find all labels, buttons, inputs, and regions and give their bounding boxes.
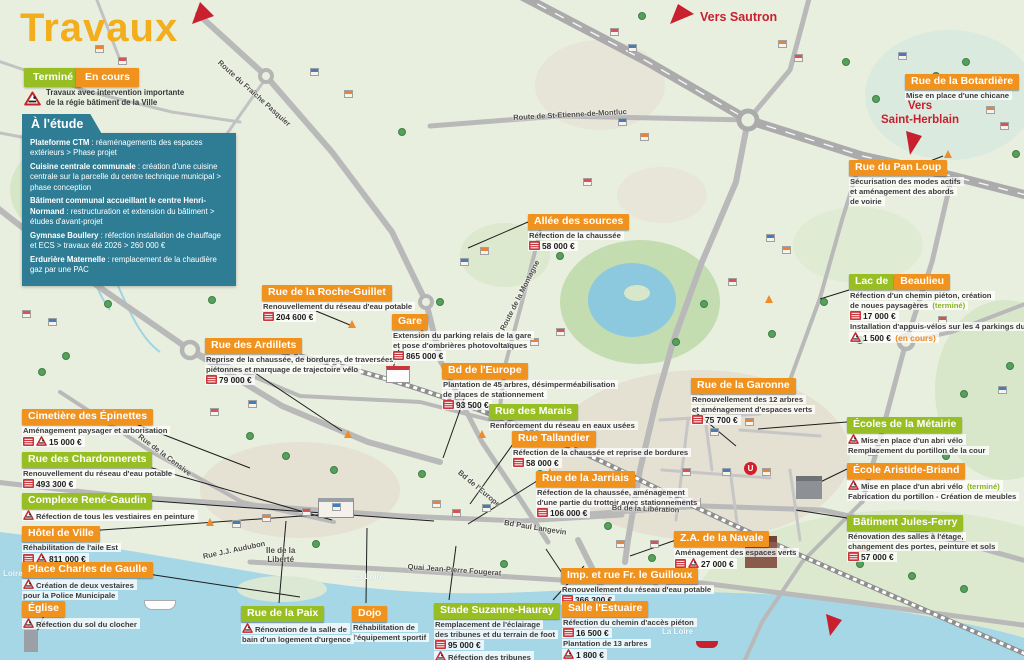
callout-title-lac-de-beaulieu[interactable]: Lac de [849, 274, 894, 290]
callout-title-stade-suzanne-hauray[interactable]: Stade Suzanne-Hauray [434, 603, 560, 619]
callout-line: 865 000 € [392, 351, 446, 361]
callout-rue-des-chardonnerets: Rue des ChardonneretsRenouvellement du r… [22, 449, 175, 489]
callout-line: Plantation de 13 arbres [562, 639, 651, 648]
callout-line: 79 000 € [205, 375, 255, 385]
callout-complexe-rene-gaudin: Complexe René-GaudinRéfection de tous le… [22, 490, 198, 521]
callout-line: des tribunes et du terrain de foot [434, 630, 558, 639]
callout-batiment-jules-ferry: Bâtiment Jules-FerryRénovation des salle… [847, 512, 998, 562]
callout-line: 1 800 € [562, 649, 607, 660]
callout-line: piétonnes et marquage de trajectoire vél… [205, 365, 361, 374]
callout-title-rue-des-ardillets[interactable]: Rue des Ardillets [205, 338, 302, 354]
callout-line: et aménagement d'espaces verts [691, 405, 815, 414]
roadworks-warning-icon [23, 579, 34, 589]
callout-title-za-de-la-navale[interactable]: Z.A. de la Navale [674, 531, 769, 547]
callout-line: Sécurisation des modes actifs [849, 177, 964, 186]
roadworks-warning-icon [563, 649, 574, 659]
callout-place-charles-de-gaulle: Place Charles de GaulleCréation de deux … [22, 559, 153, 600]
callout-line: 16 500 € [562, 628, 612, 638]
callout-line: Extension du parking relais de la gare [392, 331, 534, 340]
callout-line: 493 300 € [22, 479, 76, 489]
callout-title-rue-de-la-paix[interactable]: Rue de la Paix [241, 606, 324, 622]
map-canvas: U Rue de la BotardièreMise en place d'un… [0, 0, 1024, 660]
money-icon [443, 400, 454, 409]
callout-hotel-de-ville: Hôtel de VilleRéhabilitation de l'aile E… [22, 523, 121, 564]
status-suffix: (terminé) [967, 482, 1000, 491]
study-box-title: À l'étude [22, 114, 101, 133]
callout-rue-des-ardillets: Rue des ArdilletsReprise de la chaussée,… [205, 335, 397, 385]
callout-line: bain d'un logement d'urgence [241, 635, 354, 644]
callout-line: 93 500 € [442, 400, 492, 410]
road-label-quai: Quai Jean-Pierre Fougerat [407, 562, 501, 578]
study-item: Gymnase Boullery : réfection installatio… [30, 231, 228, 252]
status-suffix: (en cours) [895, 333, 936, 343]
callout-line: Remplacement de l'éclairage [434, 620, 543, 629]
callout-line: Renouvellement des 12 arbres [691, 395, 806, 404]
callout-line: Aménagement paysager et arborisation [22, 426, 170, 435]
callout-gare: GareExtension du parking relais de la ga… [392, 311, 534, 361]
callout-line: Aménagement des espaces verts [674, 548, 799, 557]
callout-title-rue-de-la-botardiere[interactable]: Rue de la Botardière [905, 74, 1019, 90]
callout-line: et pose d'ombrières photovoltaïques [392, 341, 530, 350]
water-label-la-loire-right: La Loire [662, 627, 693, 636]
road-label-audubon: Rue J.J. Audubon [202, 539, 266, 561]
legend-warning-note: Travaux avec intervention importante de … [24, 88, 184, 108]
callout-allee-des-sources: Allée des sourcesRéfection de la chaussé… [528, 211, 629, 251]
callout-title-allee-des-sources[interactable]: Allée des sources [528, 214, 629, 230]
study-item: Plateforme CTM : réaménagements des espa… [30, 138, 228, 159]
callout-line: Création de deux vestaires [22, 579, 137, 590]
callout-title-bd-de-l-europe[interactable]: Bd de l'Europe [442, 363, 528, 379]
study-item: Cuisine centrale communale : création d'… [30, 162, 228, 193]
callout-line: Reprise de la chaussée, de bordures, de … [205, 355, 397, 364]
callout-za-de-la-navale: Z.A. de la NavaleAménagement des espaces… [674, 528, 799, 569]
money-icon [563, 628, 574, 637]
study-item: Erdurière Maternelle : remplacement de l… [30, 255, 228, 276]
callout-rue-de-la-paix: Rue de la PaixRénovation de la salle deb… [241, 603, 354, 644]
water-label-ile-liberte: Ile de la Liberté [266, 546, 295, 564]
money-icon [393, 351, 404, 360]
callout-eglise: ÉgliseRéfection du sol du clocher [22, 598, 140, 629]
callout-title-hotel-de-ville[interactable]: Hôtel de Ville [22, 526, 100, 542]
callout-line: Réfection de la chaussée, aménagement [536, 488, 688, 497]
roadworks-warning-icon [23, 510, 34, 520]
roadworks-warning-icon [242, 623, 253, 633]
callout-lac-de-beaulieu: Lac deBeaulieuRéfection d'un chemin piét… [849, 271, 1024, 343]
callout-line: Réfection du chemin d'accès piéton [562, 618, 697, 627]
status-suffix: (terminé) [932, 301, 965, 310]
money-icon [206, 375, 217, 384]
callout-title-complexe-rene-gaudin[interactable]: Complexe René-Gaudin [22, 493, 152, 509]
roadworks-warning-icon [435, 651, 446, 660]
legend-done-chip: Terminé [24, 68, 82, 87]
callout-title-rue-des-marais[interactable]: Rue des Marais [489, 404, 578, 420]
callout-title-rue-des-chardonnerets[interactable]: Rue des Chardonnerets [22, 452, 152, 468]
callout-line: 106 000 € [536, 508, 590, 518]
callout-line: Réfection de la chaussée et reprise de b… [512, 448, 691, 457]
callout-rue-de-la-botardiere: Rue de la BotardièreMise en place d'une … [905, 71, 1019, 100]
callout-title-salle-l-estuaire[interactable]: Salle l'Estuaire [562, 601, 648, 617]
callout-line: de voirie [849, 197, 885, 206]
callout-title-cimetiere-des-epinettes[interactable]: Cimetière des Épinettes [22, 409, 153, 425]
money-icon [692, 415, 703, 424]
callout-line: l'équipement sportif [352, 633, 429, 642]
callout-line: 58 000 € [512, 458, 562, 468]
callout-line: Réfection des tribunes [434, 651, 534, 660]
callout-title-gare[interactable]: Gare [392, 314, 428, 330]
callout-stade-suzanne-hauray: Stade Suzanne-HaurayRemplacement de l'éc… [434, 600, 560, 660]
money-icon [513, 458, 524, 467]
callout-line: Rénovation des salles à l'étage, [847, 532, 966, 541]
money-icon [529, 241, 540, 250]
study-box: À l'étude Plateforme CTM : réaménagement… [22, 114, 236, 286]
callout-line: 57 000 € [847, 552, 897, 562]
callout-dojo: DojoRéhabilitation del'équipement sporti… [352, 603, 429, 642]
roadworks-warning-icon [848, 434, 859, 444]
callout-line: 95 000 € [434, 640, 484, 650]
callout-line: Réfection d'un chemin piéton, création [849, 291, 995, 300]
callout-title-rue-du-pan-loup[interactable]: Rue du Pan Loup [849, 160, 947, 176]
callout-rue-des-marais: Rue des MaraisRenforcement du réseau en … [489, 401, 638, 430]
money-icon [537, 508, 548, 517]
callout-line: Mise en place d'un abri vélo [847, 434, 966, 445]
callout-line: Renouvellement du réseau d'eau potable [262, 302, 415, 311]
callout-title-rue-de-la-garonne[interactable]: Rue de la Garonne [691, 378, 796, 394]
money-icon [848, 552, 859, 561]
roadworks-warning-icon [24, 91, 41, 106]
callout-line: Plantation de 45 arbres, désimperméabili… [442, 380, 618, 389]
callout-rue-tallandier: Rue TallandierRéfection de la chaussée e… [512, 428, 691, 468]
callout-line: Réhabilitation de l'aile Est [22, 543, 121, 552]
callout-line: Réfection de la chaussée [528, 231, 624, 240]
roadworks-warning-icon [848, 480, 859, 490]
callout-title-rue-tallandier[interactable]: Rue Tallandier [512, 431, 596, 447]
callout-line: Renouvellement du réseau d'eau potable [22, 469, 175, 478]
callout-line: Réfection du sol du clocher [22, 618, 140, 629]
callout-line: 75 700 € [691, 415, 741, 425]
callout-title-eglise[interactable]: Église [22, 601, 65, 617]
callout-line: et aménagement des abords [849, 187, 957, 196]
road-label-st-etienne: Route de St-Etienne-de-Montluc [513, 107, 627, 122]
legend-in-progress-chip: En cours [76, 68, 139, 87]
callout-line: Remplacement du portillon de la cour [847, 446, 989, 455]
callout-title-ecoles-de-la-metairie[interactable]: Écoles de la Métairie [847, 417, 962, 433]
money-icon [23, 479, 34, 488]
page-title: Travaux [20, 6, 178, 51]
callout-title-place-charles-de-gaulle[interactable]: Place Charles de Gaulle [22, 562, 153, 578]
callout-title-dojo[interactable]: Dojo [352, 606, 387, 622]
callout-line: Fabrication du portillon - Création de m… [847, 492, 1019, 501]
callout-line: changement des portes, peinture et sols [847, 542, 998, 551]
callout-title-rue-de-la-roche-guillet[interactable]: Rue de la Roche-Guillet [262, 285, 392, 301]
money-icon [23, 437, 34, 446]
roadworks-warning-icon [23, 618, 34, 628]
callout-ecoles-de-la-metairie: Écoles de la MétairieMise en place d'un … [847, 414, 989, 455]
callout-title-ecole-aristide-briand[interactable]: École Aristide-Briand [847, 463, 965, 479]
callout-line: Réhabilitation de [352, 623, 418, 632]
callout-rue-du-pan-loup: Rue du Pan LoupSécurisation des modes ac… [849, 157, 964, 206]
callout-line: Réfection de tous les vestiaires en pein… [22, 510, 198, 521]
callout-line: 17 000 € [849, 311, 899, 321]
road-label-bd-europe: Bd de l'Europe [456, 468, 502, 509]
water-label-la-loire-center: La Loire [353, 572, 384, 581]
callout-line: de places de stationnement [442, 390, 547, 399]
callout-line: 1 500 € (en cours) [849, 332, 939, 343]
roadworks-warning-icon [850, 332, 861, 342]
roadworks-warning-icon [36, 436, 47, 446]
callout-line: Mise en place d'un abri vélo (terminé) [847, 480, 1003, 491]
money-icon [263, 312, 274, 321]
callout-line: Installation d'appuis-vélos sur les 4 pa… [849, 322, 1024, 331]
callout-line: Rénovation de la salle de [241, 623, 350, 634]
callout-title-rue-de-la-jarriais[interactable]: Rue de la Jarriais [536, 471, 635, 487]
callout-title-lac-de-beaulieu[interactable]: Beaulieu [894, 274, 950, 290]
road-label-langevin: Bd Paul Langevin [504, 518, 568, 537]
callout-title-imp-et-rue-fr-le-guilloux[interactable]: Imp. et rue Fr. le Guilloux [561, 568, 698, 584]
direction-label-saint-herblain: Vers Saint-Herblain [845, 99, 995, 128]
callout-line: de noues paysagères (terminé) [849, 301, 968, 310]
money-icon [850, 311, 861, 320]
study-item: Bâtiment communal accueillant le centre … [30, 196, 228, 227]
direction-label-sautron: Vers Sautron [700, 10, 777, 24]
callout-line: 15 000 € [22, 436, 85, 447]
callout-ecole-aristide-briand: École Aristide-BriandMise en place d'un … [847, 460, 1019, 501]
callout-rue-de-la-garonne: Rue de la GaronneRenouvellement des 12 a… [691, 375, 815, 425]
callout-title-batiment-jules-ferry[interactable]: Bâtiment Jules-Ferry [847, 515, 963, 531]
callout-line: 204 600 € [262, 312, 316, 322]
callout-line: Renouvellement du réseau d'eau potable [561, 585, 714, 594]
callout-line: 58 000 € [528, 241, 578, 251]
money-icon [435, 640, 446, 649]
water-label-loire-left: Loire [3, 569, 23, 578]
